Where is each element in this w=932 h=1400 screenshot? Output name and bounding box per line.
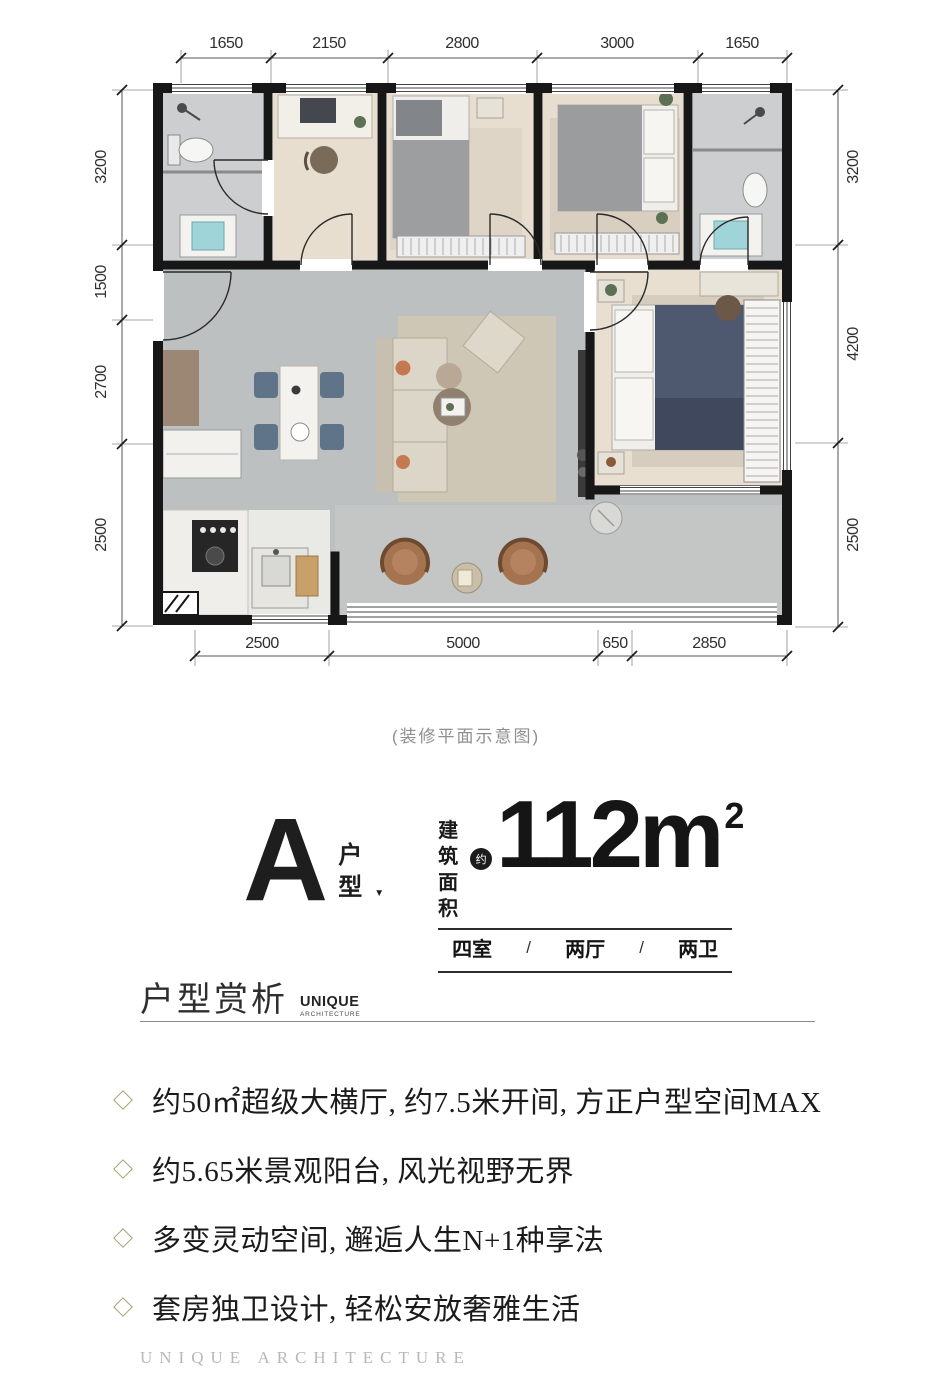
flyer-page: 1650 2150 2800 3000 1650 3200 1500 2700 … bbox=[0, 0, 932, 1400]
pillow bbox=[644, 110, 674, 154]
pillow bbox=[644, 158, 674, 202]
unit-type-char-1: 户 bbox=[338, 840, 384, 872]
unit-title-block: A 户 型 ▼ 建筑 面积 约 112m 2 四室 / 两厅 bbox=[243, 796, 732, 973]
dimensions-bottom: 2500 5000 650 2850 bbox=[190, 630, 792, 666]
desk-chair bbox=[715, 295, 741, 321]
dimensions-left: 3200 1500 2700 2500 bbox=[93, 85, 153, 631]
divider bbox=[438, 971, 732, 973]
toilet bbox=[179, 138, 213, 162]
list-item: 套房独卫设计, 轻松安放奢雅生活 bbox=[116, 1286, 821, 1328]
unit-letter: A bbox=[243, 814, 328, 906]
wardrobe bbox=[744, 300, 780, 482]
coffee-table-small bbox=[436, 363, 462, 389]
dining-chair bbox=[320, 424, 344, 450]
section-header: 户型赏析 UNIQUE ARCHITECTURE bbox=[140, 972, 361, 1021]
dim-label: 650 bbox=[602, 635, 628, 652]
feature-text: 约5.65米景观阳台, 风光视野无界 bbox=[152, 1148, 574, 1190]
toilet bbox=[743, 173, 767, 207]
brand-logo: UNIQUE ARCHITECTURE bbox=[300, 994, 361, 1018]
dim-label: 2500 bbox=[245, 635, 279, 652]
cutting-board bbox=[296, 556, 318, 596]
dressing-desk bbox=[700, 272, 778, 296]
feature-text: 套房独卫设计, 轻松安放奢雅生活 bbox=[152, 1286, 581, 1328]
dim-label: 2800 bbox=[445, 35, 479, 52]
feature-text: 约50㎡超级大横厅, 约7.5米开间, 方正户型空间MAX bbox=[152, 1079, 821, 1121]
floor-plan-svg: 1650 2150 2800 3000 1650 3200 1500 2700 … bbox=[0, 0, 932, 695]
diamond-bullet-icon bbox=[113, 1228, 133, 1248]
dimensions-right: 3200 4200 2500 bbox=[795, 85, 862, 632]
dining-chair bbox=[254, 372, 278, 398]
nightstand bbox=[477, 98, 503, 118]
printer bbox=[300, 98, 336, 123]
pillow bbox=[396, 100, 442, 136]
dim-label: 1650 bbox=[725, 35, 759, 52]
sink-basin bbox=[192, 222, 224, 250]
triangle-icon: ▼ bbox=[374, 887, 384, 901]
sink-basin bbox=[714, 221, 748, 249]
diamond-bullet-icon bbox=[113, 1297, 133, 1317]
dim-label: 2500 bbox=[845, 518, 862, 552]
area-exponent: 2 bbox=[724, 798, 744, 834]
window-bench bbox=[397, 236, 525, 257]
layout-rooms: 四室 bbox=[452, 933, 492, 962]
dim-label: 3000 bbox=[600, 35, 634, 52]
dim-label: 2500 bbox=[93, 518, 110, 552]
plan-caption: (装修平面示意图) bbox=[0, 722, 932, 747]
list-item: 约50㎡超级大横厅, 约7.5米开间, 方正户型空间MAX bbox=[116, 1079, 821, 1121]
dim-label: 2700 bbox=[93, 365, 110, 399]
layout-summary: 四室 / 两厅 / 两卫 bbox=[438, 930, 732, 965]
diamond-bullet-icon bbox=[113, 1159, 133, 1179]
dim-label: 5000 bbox=[446, 635, 480, 652]
unit-type-label: 户 型 ▼ bbox=[338, 840, 384, 905]
area-block: 建筑 面积 约 112m 2 四室 / 两厅 / 两卫 bbox=[438, 796, 732, 973]
desk-chair bbox=[310, 146, 338, 174]
list-item: 约5.65米景观阳台, 风光视野无界 bbox=[116, 1148, 821, 1190]
section-title: 户型赏析 bbox=[140, 972, 288, 1021]
brand-subtitle: ARCHITECTURE bbox=[300, 1011, 361, 1018]
dim-label: 2850 bbox=[692, 635, 726, 652]
approx-badge-icon: 约 bbox=[470, 848, 492, 870]
dim-label: 4200 bbox=[845, 327, 862, 361]
bedroom-2 bbox=[550, 92, 680, 254]
pillow bbox=[615, 310, 653, 372]
entry-console bbox=[163, 350, 199, 426]
pillow bbox=[615, 378, 653, 440]
dim-label: 1500 bbox=[93, 265, 110, 299]
diamond-bullet-icon bbox=[113, 1090, 133, 1110]
footer-brand: UNIQUE ARCHITECTURE bbox=[140, 1348, 471, 1368]
floor-plan-area: 1650 2150 2800 3000 1650 3200 1500 2700 … bbox=[0, 0, 932, 695]
unit-type-char-2: 型 bbox=[338, 872, 362, 904]
dining-table bbox=[280, 366, 318, 460]
header-rule bbox=[140, 1021, 815, 1022]
dim-label: 1650 bbox=[209, 35, 243, 52]
layout-baths: 两卫 bbox=[678, 933, 718, 962]
brand-name: UNIQUE bbox=[300, 994, 361, 1010]
dim-label: 2150 bbox=[312, 35, 346, 52]
layout-halls: 两厅 bbox=[565, 933, 605, 962]
dim-label: 3200 bbox=[93, 150, 110, 184]
feature-text: 多变灵动空间, 邂逅人生N+1种享法 bbox=[152, 1217, 604, 1259]
area-label: 建筑 面积 bbox=[438, 818, 458, 922]
dim-label: 3200 bbox=[845, 150, 862, 184]
dining-chair bbox=[320, 372, 344, 398]
list-item: 多变灵动空间, 邂逅人生N+1种享法 bbox=[116, 1217, 821, 1259]
area-value: 112m bbox=[496, 796, 720, 875]
dining-chair bbox=[254, 424, 278, 450]
dimensions-top: 1650 2150 2800 3000 1650 bbox=[176, 35, 792, 83]
feature-list: 约50㎡超级大横厅, 约7.5米开间, 方正户型空间MAX 约5.65米景观阳台… bbox=[116, 1079, 821, 1328]
